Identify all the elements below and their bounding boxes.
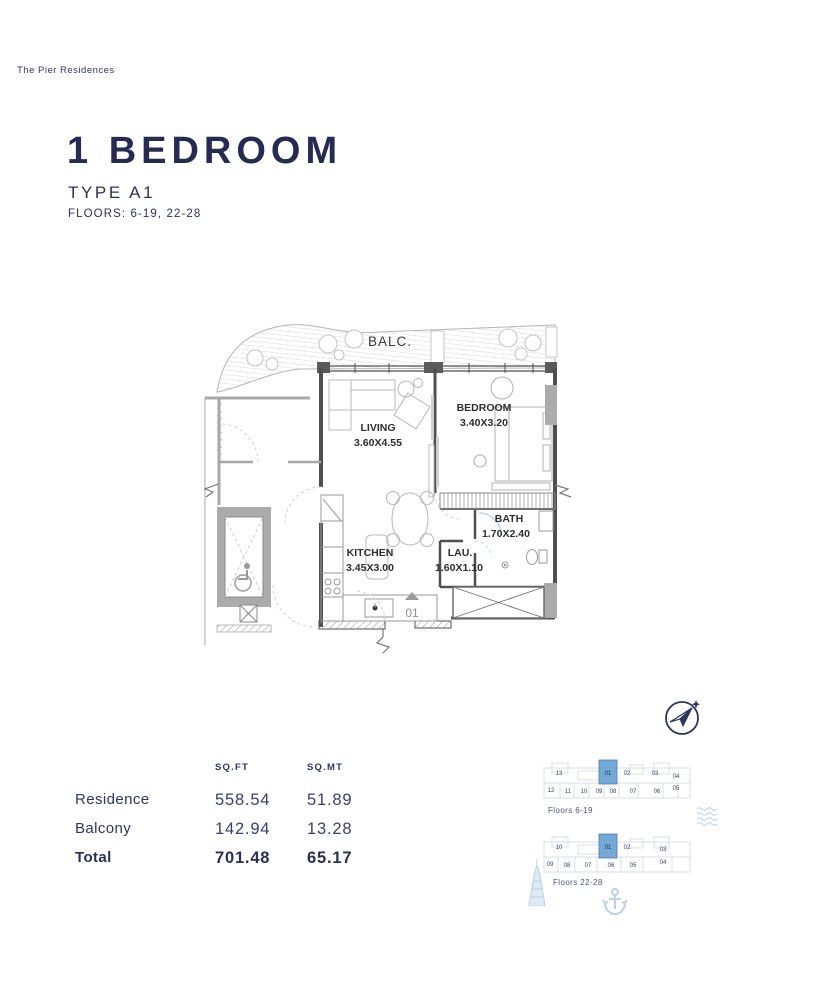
laundry-dims: 1.60X1.10 [435, 562, 483, 574]
row-sqft: 142.94 [215, 820, 270, 839]
row-label: Residence [75, 791, 149, 808]
svg-text:09: 09 [547, 862, 554, 868]
bedroom-furniture [474, 377, 552, 490]
svg-text:08: 08 [610, 789, 617, 795]
column-header-sqmt: SQ.MT [307, 762, 343, 773]
living-label: LIVING [360, 422, 395, 434]
dining-set [387, 492, 434, 547]
svg-text:05: 05 [673, 786, 680, 792]
waves-icon [696, 806, 720, 828]
svg-text:13: 13 [556, 771, 563, 777]
svg-text:04: 04 [660, 860, 667, 866]
bath-dims: 1.70X2.40 [482, 528, 530, 540]
entry-unit-number: 01 [405, 606, 419, 620]
anchor-icon [602, 887, 628, 915]
svg-text:04: 04 [673, 774, 680, 780]
floor-plan: 01 BALC. LIVING 3.60X4.55 BEDROOM 3.40X3… [203, 295, 578, 670]
svg-text:07: 07 [630, 789, 637, 795]
svg-text:10: 10 [581, 789, 588, 795]
laundry-label: LAU. [448, 547, 473, 559]
tower-icon [527, 859, 547, 906]
keyplan-floors-6-19: 13 01 02 03 04 12 11 10 09 08 07 06 05 [542, 756, 692, 804]
living-dims: 3.60X4.55 [354, 437, 402, 449]
floors-range: FLOORS: 6-19, 22-28 [68, 208, 201, 220]
compass-icon [662, 697, 704, 739]
row-sqft: 701.48 [215, 849, 270, 868]
brochure-page: The Pier Residences 1 BEDROOM TYPE A1 FL… [0, 0, 834, 1000]
bedroom-dims: 3.40X3.20 [460, 417, 508, 429]
svg-text:01: 01 [605, 845, 612, 851]
svg-text:05: 05 [630, 863, 637, 869]
keyplan-b-label: Floors 22-28 [553, 878, 603, 887]
svg-text:08: 08 [564, 863, 571, 869]
entry-closet [453, 587, 544, 618]
svg-text:09: 09 [596, 789, 603, 795]
entry-marker: 01 [405, 592, 419, 620]
svg-text:02: 02 [624, 771, 631, 777]
svg-text:06: 06 [654, 789, 661, 795]
kitchen-dims: 3.45X3.00 [346, 562, 394, 574]
row-label: Balcony [75, 820, 131, 837]
row-sqft: 558.54 [215, 791, 270, 810]
keyplan-a-label: Floors 6-19 [548, 806, 593, 815]
bedroom-label: BEDROOM [457, 402, 512, 414]
brand-name: The Pier Residences [17, 65, 115, 76]
keyplan-floors-22-28: 10 01 02 03 09 08 07 06 05 04 [542, 830, 692, 878]
kitchen-label: KITCHEN [347, 547, 394, 559]
svg-text:07: 07 [585, 863, 592, 869]
svg-text:02: 02 [624, 845, 631, 851]
page-title: 1 BEDROOM [67, 130, 342, 173]
column-header-sqft: SQ.FT [215, 762, 249, 773]
svg-text:12: 12 [548, 788, 555, 794]
row-sqmt: 65.17 [307, 849, 352, 868]
svg-text:01: 01 [605, 771, 612, 777]
row-label: Total [75, 849, 112, 866]
svg-text:03: 03 [652, 771, 659, 777]
row-sqmt: 13.28 [307, 820, 352, 839]
common-area [205, 398, 321, 645]
row-sqmt: 51.89 [307, 791, 352, 810]
svg-text:03: 03 [660, 847, 667, 853]
svg-text:10: 10 [556, 845, 563, 851]
area-table: SQ.FT SQ.MT Residence 558.54 51.89 Balco… [75, 760, 395, 880]
balcony-label: BALC. [368, 334, 412, 349]
svg-text:11: 11 [565, 789, 572, 795]
unit-type: TYPE A1 [68, 183, 155, 203]
bath-label: BATH [495, 513, 523, 525]
svg-text:06: 06 [608, 863, 615, 869]
